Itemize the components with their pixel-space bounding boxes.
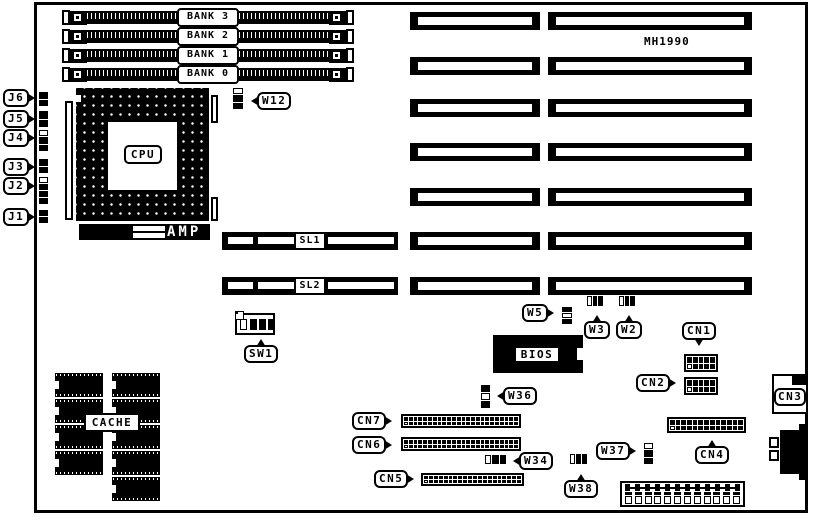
amp-label: AMP	[167, 224, 201, 240]
cpu-bracket-bottom	[211, 197, 218, 221]
w3-jumper	[587, 296, 603, 306]
bank-label: BANK 1	[177, 46, 239, 65]
simm-end-bracket	[62, 29, 70, 44]
power-socket-row	[625, 496, 740, 504]
slot-sl1: SL1	[222, 232, 398, 250]
cache-chip	[112, 477, 160, 501]
callout-w34: W34	[519, 452, 553, 470]
cache-chip	[112, 451, 160, 475]
simm-pin-bar	[239, 30, 329, 43]
simm-latch	[329, 11, 346, 25]
simm-latch	[70, 11, 87, 25]
cpu-label: CPU	[124, 145, 162, 164]
callout-cn1: CN1	[682, 322, 716, 340]
cpu-retention-bar	[65, 101, 73, 220]
expansion-slot	[548, 188, 752, 206]
callout-cn2: CN2	[636, 374, 670, 392]
simm-end-bracket	[62, 10, 70, 25]
expansion-slot	[548, 57, 752, 75]
power-connector	[620, 481, 745, 507]
sw1-dip-switch	[235, 313, 275, 335]
simm-pin-bar	[239, 68, 329, 81]
simm-pin-bar	[239, 49, 329, 62]
callout-cn6: CN6	[352, 436, 386, 454]
bios-label: BIOS	[514, 346, 560, 363]
motherboard-diagram: MH1990 BANK 3 BANK 2 BANK 1 BANK 0 CPU A…	[0, 0, 815, 520]
callout-w37: W37	[596, 442, 630, 460]
cpu-bracket-top	[211, 95, 218, 123]
callout-cn7: CN7	[352, 412, 386, 430]
simm-latch	[70, 30, 87, 44]
j6-pins	[39, 92, 48, 106]
w12-jumper	[233, 88, 243, 109]
bank-label: BANK 0	[177, 65, 239, 84]
simm-latch	[70, 49, 87, 63]
sl2-label: SL2	[294, 277, 326, 295]
expansion-slot	[548, 232, 752, 250]
callout-w12: W12	[257, 92, 291, 110]
simm-pin-bar	[87, 68, 177, 81]
callout-cn4: CN4	[695, 446, 729, 464]
w38-jumper	[570, 454, 587, 464]
power-contact-row	[625, 492, 740, 495]
simm-end-bracket	[62, 67, 70, 82]
w2-jumper	[619, 296, 635, 306]
cn5-header	[421, 473, 524, 486]
model-number: MH1990	[644, 35, 690, 48]
simm-end-bracket	[346, 10, 354, 25]
j5-pins	[39, 111, 48, 127]
amp-connector-slot	[133, 226, 165, 231]
expansion-slot	[410, 188, 540, 206]
callout-w38: W38	[564, 480, 598, 498]
cn1-header	[684, 354, 718, 372]
callout-cn3: CN3	[774, 388, 806, 406]
callout-j2: J2	[3, 177, 29, 195]
cache-label: CACHE	[84, 413, 140, 432]
expansion-slot	[548, 12, 752, 30]
simm-end-bracket	[346, 29, 354, 44]
callout-cn5: CN5	[374, 470, 408, 488]
expansion-slot	[548, 99, 752, 117]
expansion-slot	[548, 277, 752, 295]
callout-w3: W3	[584, 321, 610, 339]
expansion-slot	[410, 143, 540, 161]
j3-pins	[39, 159, 48, 173]
simm-socket: BANK 0	[62, 65, 354, 84]
cache-chip	[55, 373, 103, 397]
j1-pins	[39, 210, 48, 223]
keyboard-connector-pin	[769, 437, 779, 448]
cn3-port-block	[792, 374, 808, 385]
cn6-header	[401, 437, 521, 451]
simm-latch	[70, 68, 87, 82]
sl1-label: SL1	[294, 232, 326, 250]
simm-pin-bar	[87, 11, 177, 24]
cn7-header	[401, 414, 521, 428]
simm-latch	[329, 49, 346, 63]
expansion-slot	[410, 57, 540, 75]
simm-end-bracket	[346, 48, 354, 63]
cpu-socket-notch	[74, 95, 81, 102]
w37-jumper	[644, 443, 653, 464]
expansion-slot	[410, 277, 540, 295]
simm-end-bracket	[62, 48, 70, 63]
callout-w36: W36	[503, 387, 537, 405]
cn4-header	[667, 417, 746, 433]
callout-j4: J4	[3, 129, 29, 147]
simm-pin-bar	[87, 49, 177, 62]
callout-w2: W2	[616, 321, 642, 339]
amp-connector-slot	[133, 233, 165, 238]
expansion-slot	[410, 12, 540, 30]
expansion-slot	[548, 143, 752, 161]
w34-jumper	[485, 455, 506, 464]
callout-j1: J1	[3, 208, 29, 226]
simm-pin-bar	[239, 11, 329, 24]
keyboard-connector-pin	[769, 450, 779, 461]
callout-j3: J3	[3, 158, 29, 176]
simm-pin-bar	[87, 30, 177, 43]
callout-j5: J5	[3, 110, 29, 128]
power-pin-row	[625, 484, 740, 491]
simm-latch	[329, 68, 346, 82]
keyboard-connector-shell	[799, 424, 808, 480]
callout-w5: W5	[522, 304, 548, 322]
w36-jumper	[481, 385, 490, 408]
j4-pins	[39, 130, 48, 151]
simm-latch	[329, 30, 346, 44]
bank-label: BANK 3	[177, 8, 239, 27]
expansion-slot	[410, 99, 540, 117]
j2-pins	[39, 177, 48, 204]
slot-sl2: SL2	[222, 277, 398, 295]
simm-end-bracket	[346, 67, 354, 82]
callout-j6: J6	[3, 89, 29, 107]
simm-socket: BANK 2	[62, 27, 354, 46]
expansion-slot	[410, 232, 540, 250]
w5-jumper	[562, 307, 572, 324]
bank-label: BANK 2	[177, 27, 239, 46]
cn2-header	[684, 377, 718, 395]
bios-chip-notch	[577, 348, 583, 360]
cache-chip	[112, 373, 160, 397]
cache-chip	[55, 451, 103, 475]
callout-sw1: SW1	[244, 345, 278, 363]
simm-socket: BANK 1	[62, 46, 354, 65]
simm-socket: BANK 3	[62, 8, 354, 27]
